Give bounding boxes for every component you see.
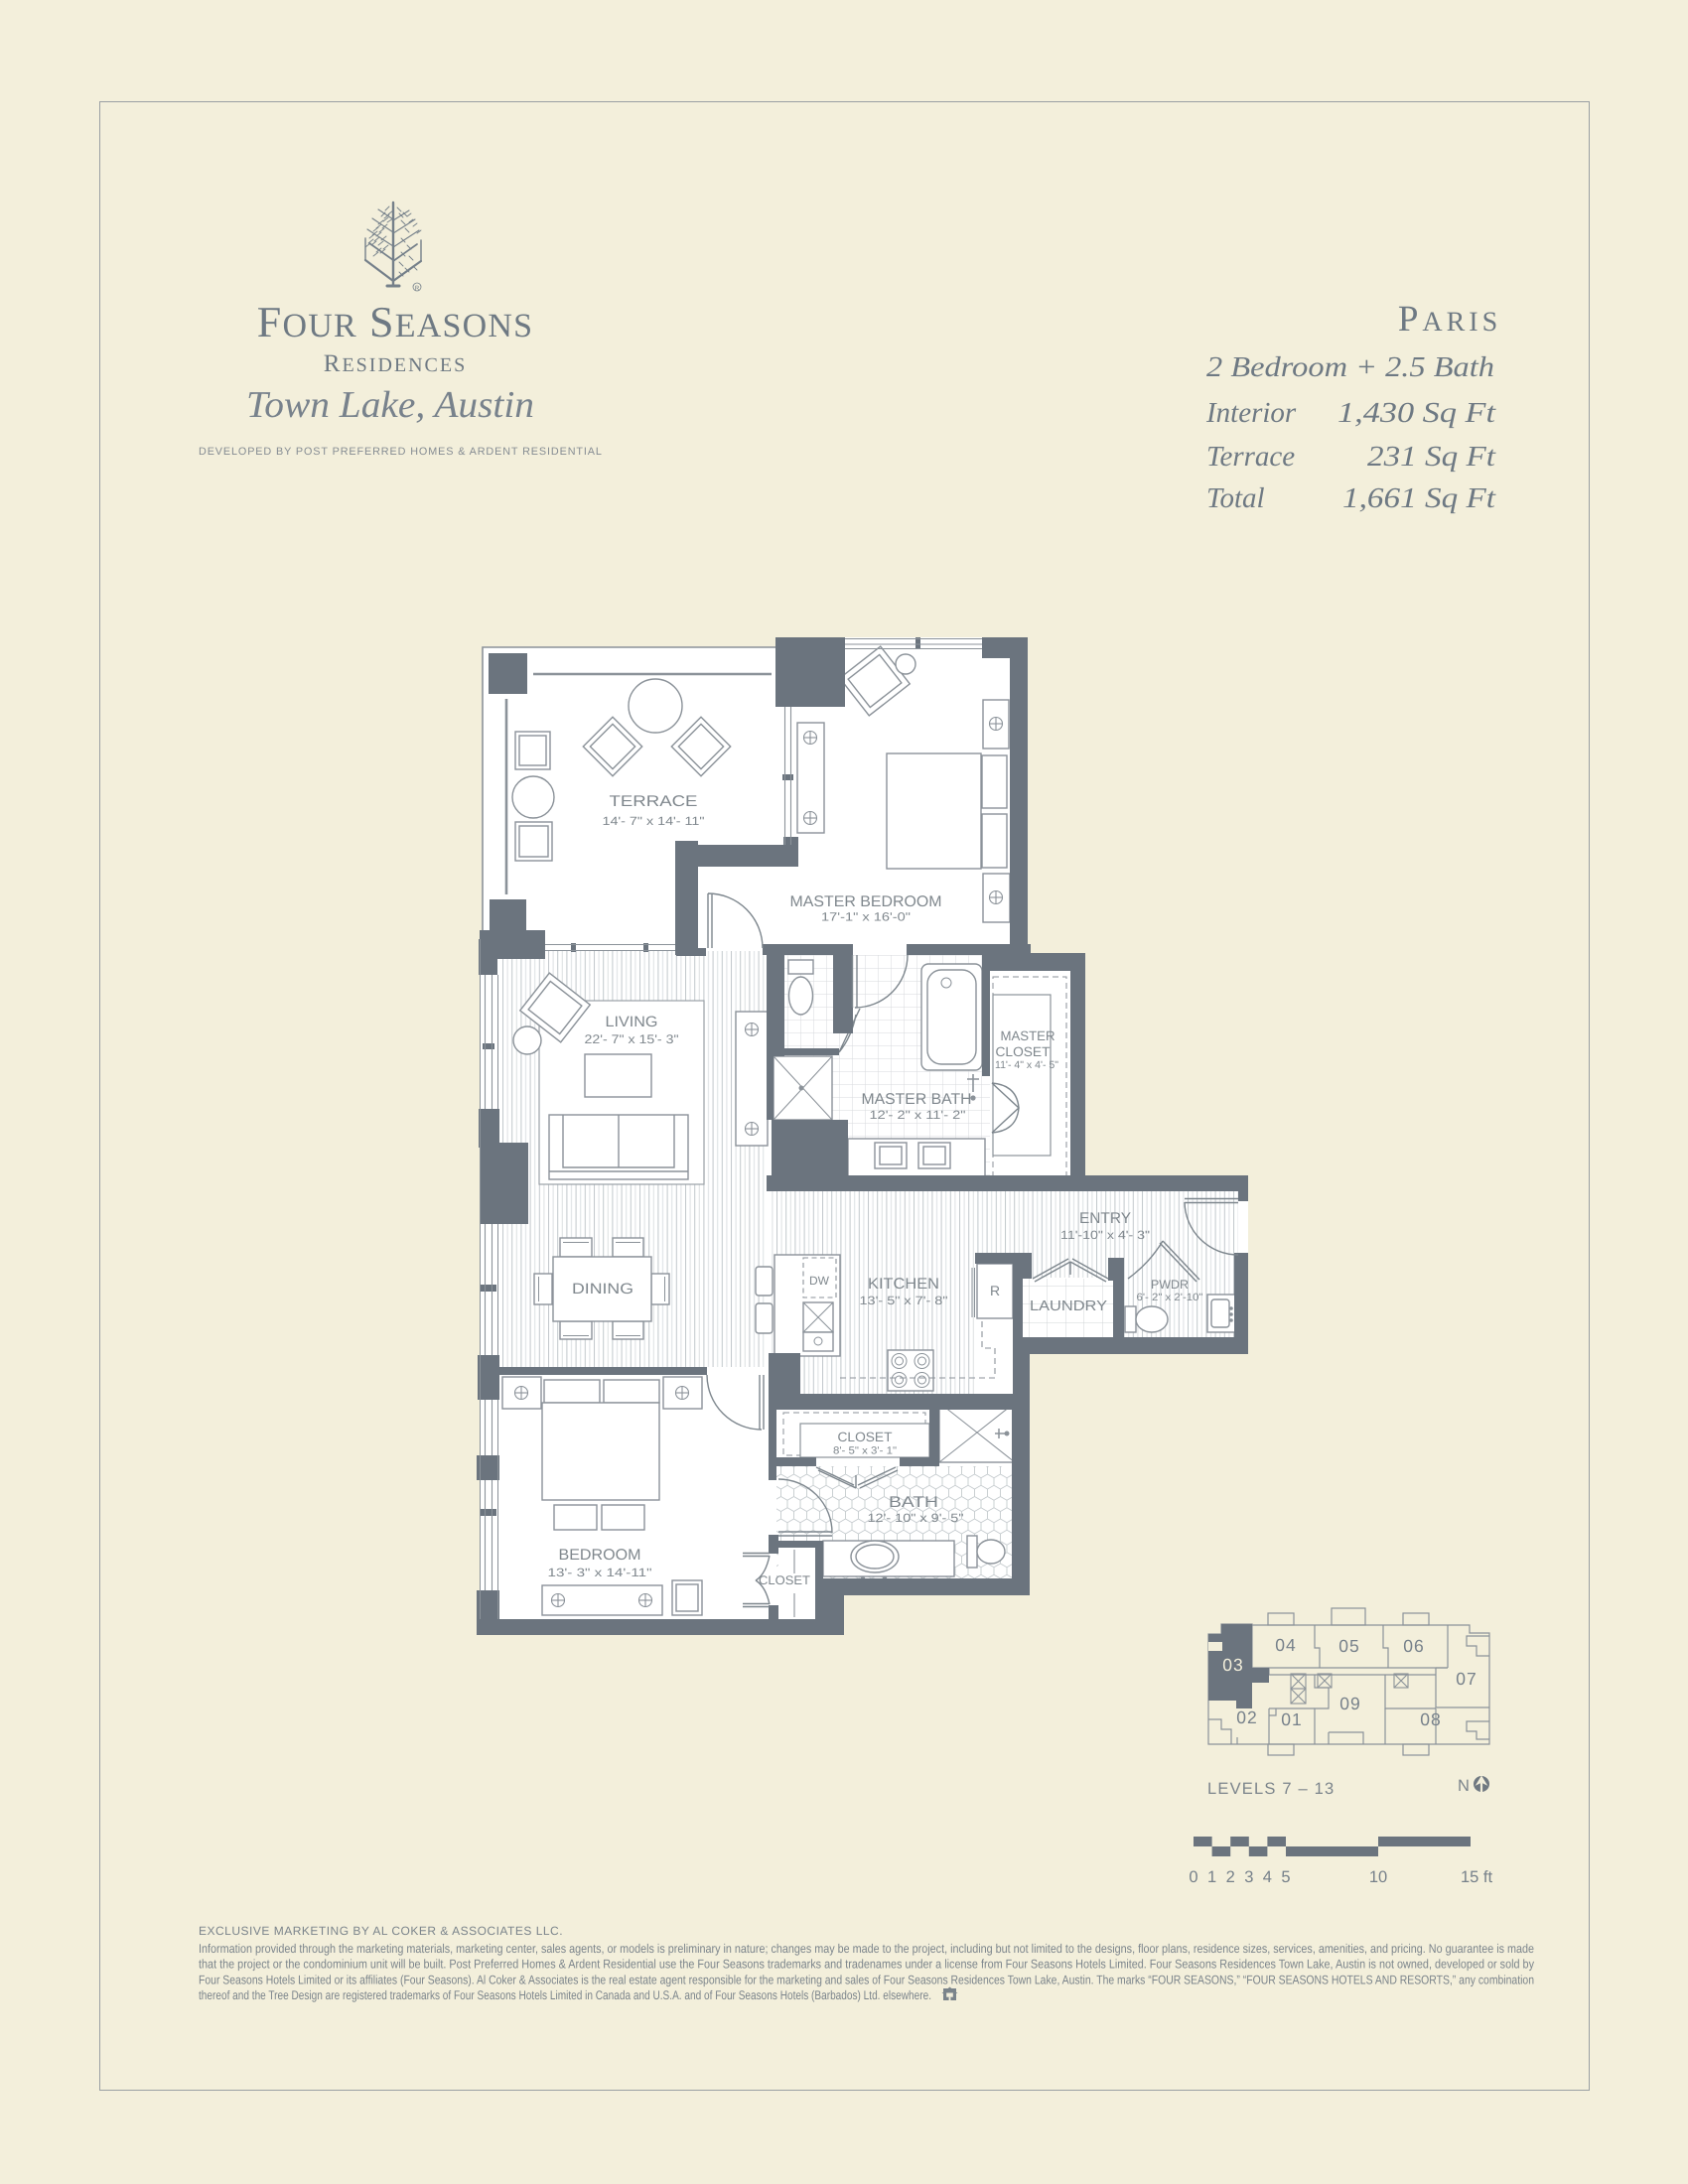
svg-text:07: 07 bbox=[1456, 1669, 1477, 1689]
svg-text:Town Lake, Austin: Town Lake, Austin bbox=[246, 384, 534, 426]
svg-text:Total: Total bbox=[1206, 482, 1265, 514]
svg-text:1: 1 bbox=[1207, 1868, 1216, 1886]
svg-text:3: 3 bbox=[1244, 1868, 1253, 1886]
svg-text:2: 2 bbox=[1226, 1868, 1235, 1886]
svg-text:BATH: BATH bbox=[889, 1494, 938, 1511]
svg-text:09: 09 bbox=[1339, 1694, 1360, 1713]
svg-text:04: 04 bbox=[1275, 1635, 1296, 1655]
svg-text:06: 06 bbox=[1403, 1636, 1424, 1656]
svg-text:11'- 4" x 4'- 5": 11'- 4" x 4'- 5" bbox=[995, 1059, 1058, 1071]
svg-text:Terrace: Terrace bbox=[1206, 441, 1295, 473]
svg-text:DEVELOPED BY POST PREFERRED HO: DEVELOPED BY POST PREFERRED HOMES & ARDE… bbox=[199, 446, 603, 458]
svg-text:1,430 Sq Ft: 1,430 Sq Ft bbox=[1337, 397, 1496, 429]
svg-text:17'-1" x 16'-0": 17'-1" x 16'-0" bbox=[821, 910, 911, 924]
svg-text:0: 0 bbox=[1189, 1868, 1197, 1886]
svg-text:N: N bbox=[1458, 1777, 1470, 1795]
svg-text:R: R bbox=[990, 1283, 1000, 1298]
svg-text:MASTER BEDROOM: MASTER BEDROOM bbox=[790, 893, 942, 910]
svg-text:2 Bedroom + 2.5 Bath: 2 Bedroom + 2.5 Bath bbox=[1206, 351, 1494, 383]
svg-text:ENTRY: ENTRY bbox=[1079, 1210, 1131, 1227]
svg-text:22'- 7" x 15'- 3": 22'- 7" x 15'- 3" bbox=[585, 1032, 679, 1046]
svg-text:Interior: Interior bbox=[1205, 397, 1297, 429]
svg-text:FOUR SEASONS: FOUR SEASONS bbox=[257, 298, 533, 346]
svg-text:15 ft: 15 ft bbox=[1461, 1868, 1493, 1886]
svg-text:4: 4 bbox=[1263, 1868, 1272, 1886]
svg-text:BEDROOM: BEDROOM bbox=[559, 1547, 641, 1564]
svg-text:TERRACE: TERRACE bbox=[610, 793, 698, 810]
svg-text:PWDR: PWDR bbox=[1151, 1278, 1189, 1292]
svg-text:231 Sq Ft: 231 Sq Ft bbox=[1367, 441, 1496, 473]
svg-text:02: 02 bbox=[1236, 1707, 1257, 1727]
svg-text:RESIDENCES: RESIDENCES bbox=[324, 350, 467, 377]
svg-text:13'- 3" x 14'-11": 13'- 3" x 14'-11" bbox=[548, 1566, 652, 1579]
svg-text:Four Seasons Hotels Limited or: Four Seasons Hotels Limited or its affil… bbox=[199, 1973, 1534, 1986]
svg-text:14'- 7" x 14'- 11": 14'- 7" x 14'- 11" bbox=[603, 814, 705, 828]
svg-text:that the project or the condom: that the project or the condominium unit… bbox=[199, 1958, 1535, 1972]
svg-text:6'- 2" x 2'-10": 6'- 2" x 2'-10" bbox=[1137, 1292, 1203, 1303]
svg-text:KITCHEN: KITCHEN bbox=[868, 1276, 939, 1293]
svg-text:1,661 Sq Ft: 1,661 Sq Ft bbox=[1342, 482, 1496, 514]
svg-text:DINING: DINING bbox=[572, 1281, 633, 1297]
svg-text:CLOSET: CLOSET bbox=[996, 1044, 1051, 1059]
svg-text:13'- 5" x 7'- 8": 13'- 5" x 7'- 8" bbox=[860, 1294, 948, 1307]
svg-text:12'- 10" x 9'- 5": 12'- 10" x 9'- 5" bbox=[868, 1511, 964, 1525]
svg-text:EXCLUSIVE MARKETING BY AL COKE: EXCLUSIVE MARKETING BY AL COKER & ASSOCI… bbox=[199, 1924, 563, 1938]
svg-text:10: 10 bbox=[1369, 1868, 1387, 1886]
svg-text:PARIS: PARIS bbox=[1398, 299, 1501, 340]
svg-text:01: 01 bbox=[1281, 1709, 1302, 1729]
svg-text:MASTER: MASTER bbox=[1001, 1028, 1055, 1043]
svg-text:DW: DW bbox=[809, 1274, 830, 1288]
svg-text:8'- 5" x 3'- 1": 8'- 5" x 3'- 1" bbox=[833, 1445, 897, 1457]
svg-text:R: R bbox=[415, 285, 420, 292]
svg-text:MASTER BATH: MASTER BATH bbox=[862, 1091, 972, 1108]
svg-text:LIVING: LIVING bbox=[606, 1014, 658, 1030]
svg-text:03: 03 bbox=[1222, 1655, 1243, 1675]
svg-text:thereof and the Tree Design ar: thereof and the Tree Design are register… bbox=[199, 1988, 931, 2002]
svg-text:CLOSET: CLOSET bbox=[838, 1430, 893, 1444]
svg-text:08: 08 bbox=[1420, 1709, 1441, 1729]
svg-text:Information provided through t: Information provided through the marketi… bbox=[199, 1942, 1534, 1956]
svg-text:12'- 2" x 11'- 2": 12'- 2" x 11'- 2" bbox=[870, 1108, 966, 1122]
svg-text:5: 5 bbox=[1281, 1868, 1290, 1886]
svg-text:CLOSET: CLOSET bbox=[759, 1573, 810, 1587]
svg-text:05: 05 bbox=[1338, 1636, 1359, 1656]
svg-text:LAUNDRY: LAUNDRY bbox=[1030, 1298, 1107, 1314]
svg-text:11'-10" x 4'- 3": 11'-10" x 4'- 3" bbox=[1060, 1228, 1150, 1242]
svg-text:LEVELS 7 – 13: LEVELS 7 – 13 bbox=[1207, 1780, 1335, 1798]
